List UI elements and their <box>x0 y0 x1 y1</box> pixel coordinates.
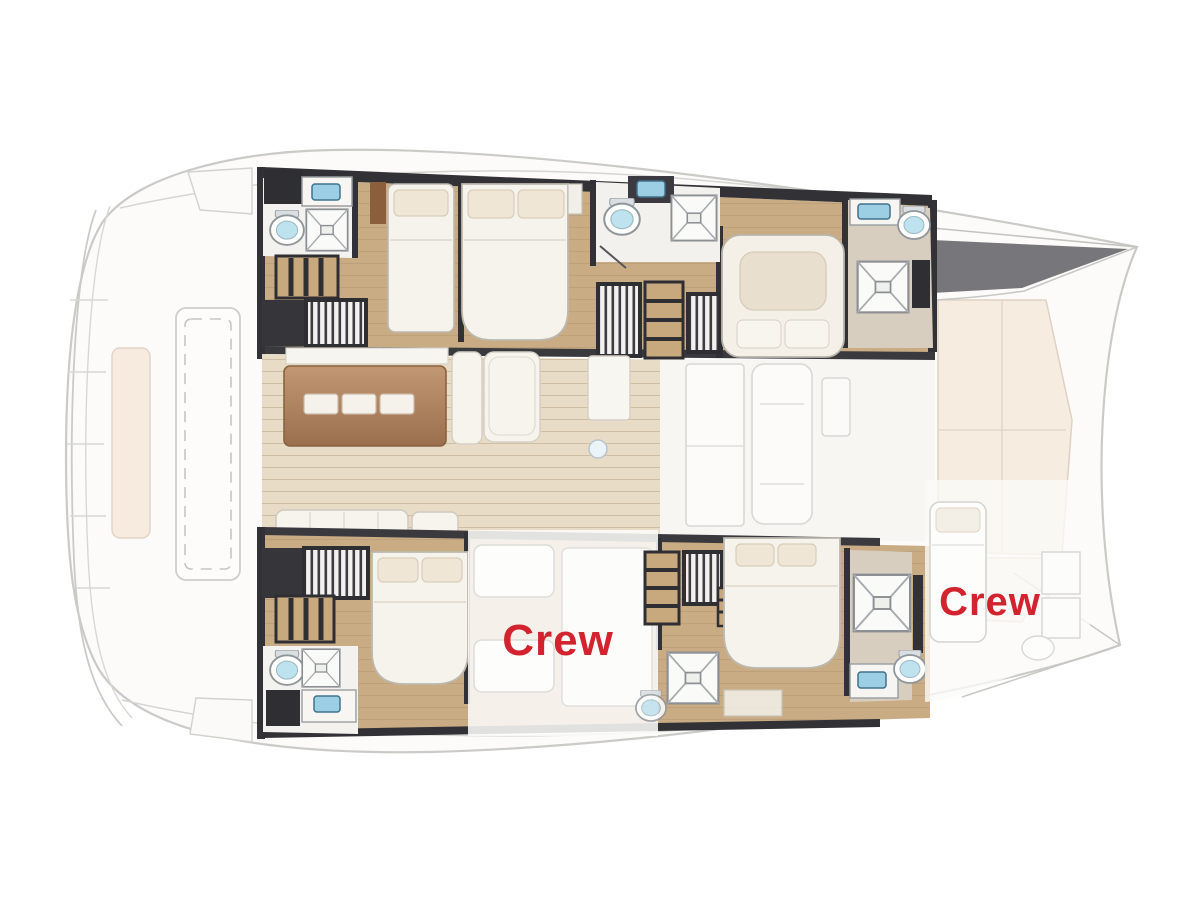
sink-basin <box>858 204 890 219</box>
stairs-top-left <box>276 256 338 298</box>
salon <box>262 348 935 544</box>
wardrobe-bottom-left <box>304 548 368 598</box>
sink-basin <box>858 672 886 688</box>
shower <box>668 653 719 704</box>
nightstand <box>568 184 582 214</box>
toilet <box>898 206 930 239</box>
shower <box>854 575 910 631</box>
shower <box>858 262 909 313</box>
bathroom-top-right <box>848 199 933 348</box>
crew-cabinet-2 <box>1042 598 1080 638</box>
wall-right-shower <box>913 575 923 653</box>
lounge-seat <box>484 352 540 442</box>
wardrobe-bottom-mid <box>684 552 722 604</box>
stairs-top-mid <box>645 282 683 358</box>
wardrobe-top-mid-a <box>598 284 640 356</box>
cabin-top-aft-bed <box>722 235 844 357</box>
cockpit-bench-cushion <box>112 348 150 538</box>
hob-1 <box>304 394 338 414</box>
cabinet-dark <box>266 690 300 726</box>
double-bed <box>462 184 568 340</box>
bathroom-top-mid <box>596 176 720 268</box>
wall-div-1 <box>352 176 358 258</box>
side-cabinet <box>588 356 630 420</box>
cabinet-top-left-lower <box>262 300 304 346</box>
cabinet-bottom-left <box>262 548 302 598</box>
cockpit-sofa <box>752 364 812 524</box>
toilet <box>894 650 926 683</box>
wall-div-bath-right <box>844 548 850 696</box>
wardrobe-top-left <box>306 300 366 346</box>
sink-basin <box>312 184 340 200</box>
cabin-bottom-right-bed <box>724 538 840 668</box>
stairs-bottom-mid <box>645 552 679 624</box>
sink-basin <box>637 181 665 197</box>
toilet <box>604 198 640 235</box>
toilet <box>270 210 304 245</box>
toilet <box>636 690 666 721</box>
shower <box>302 649 340 687</box>
chaise <box>452 352 482 444</box>
shelf-wood <box>370 182 386 224</box>
hob-3 <box>380 394 414 414</box>
counter <box>724 690 782 716</box>
crew-label-mid: Crew <box>502 619 614 663</box>
catamaran-floorplan <box>0 0 1201 900</box>
shower <box>306 209 347 250</box>
bathroom-top-left <box>263 170 352 258</box>
hob-2 <box>342 394 376 414</box>
cabinet-dark <box>912 260 930 308</box>
wardrobe-top-mid-b <box>688 294 720 352</box>
crew-label-bow: Crew <box>939 582 1041 622</box>
galley-upper-cabinets <box>286 348 448 364</box>
toilet <box>270 650 304 685</box>
cabin-top-forward <box>370 182 582 340</box>
cabinet-dark <box>264 170 302 204</box>
bathroom-bottom-left <box>263 646 358 734</box>
sliding-door <box>686 364 744 526</box>
shower <box>671 195 716 240</box>
crew-seat <box>1022 636 1054 660</box>
floorplan-canvas: Crew Crew <box>0 0 1201 900</box>
single-bed <box>388 184 454 332</box>
stairs-bottom-left <box>276 596 334 642</box>
aft-steps-bottom <box>190 698 252 742</box>
crew-cabinet-1 <box>1042 552 1080 594</box>
wall-div-3 <box>590 180 596 266</box>
sink-basin <box>314 696 340 712</box>
floor-light <box>589 440 607 458</box>
cabin-bottom-left-bed <box>372 552 468 684</box>
galley-island <box>284 366 446 446</box>
crew-berth-1 <box>474 545 554 597</box>
helm-console <box>822 378 850 436</box>
